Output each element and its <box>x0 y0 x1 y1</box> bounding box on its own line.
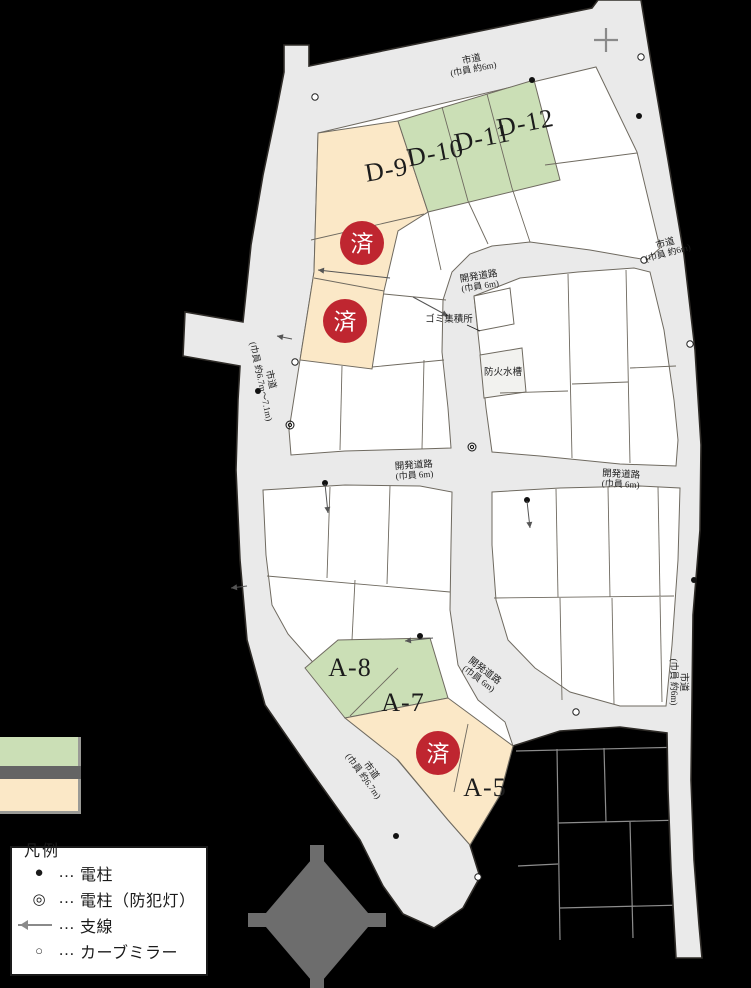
subdivision-map-page: 済済済D-9D-10D-11D-12A-8A-7A-5市道(巾員 約6m)市道(… <box>0 0 751 988</box>
curve-mirror-icon <box>638 54 644 60</box>
lot-label[interactable]: A-7 <box>381 688 424 717</box>
legend-label: 電柱（防犯灯） <box>80 887 196 911</box>
lot-map-canvas: 済済済D-9D-10D-11D-12A-8A-7A-5市道(巾員 約6m)市道(… <box>0 0 751 988</box>
map-legend: 凡例 ● … 電柱 ◎ … 電柱（防犯灯） … 支線 ○ … カーブミラー <box>10 846 208 976</box>
legend-row-curve-mirror: ○ … カーブミラー <box>24 938 206 964</box>
utility-pole-icon: ● <box>24 865 54 882</box>
legend-row-utility-pole: ● … 電柱 <box>24 860 206 886</box>
outside-lot-line <box>560 905 684 908</box>
road-label: 開発道路(巾員 6m) <box>394 458 434 482</box>
legend-dots: … <box>54 864 80 882</box>
utility-pole-icon <box>636 113 642 119</box>
utility-pole-icon <box>393 833 399 839</box>
outside-lot-line <box>557 749 560 940</box>
curve-mirror-icon <box>475 874 481 880</box>
utility-pole-icon <box>691 577 697 583</box>
outside-lot-line <box>518 864 558 866</box>
outside-lot-line <box>558 820 684 823</box>
sold-marker-label: 済 <box>334 309 357 334</box>
sold-marker-label: 済 <box>427 741 450 766</box>
cream-lot-swatch <box>0 779 78 811</box>
guy-wire-icon <box>24 916 54 934</box>
guy-wire-arrowhead-icon <box>231 584 237 590</box>
outside-lot-line <box>604 748 606 822</box>
outside-lot-line <box>630 822 633 938</box>
legend-label: 支線 <box>80 913 113 937</box>
curve-mirror-icon: ○ <box>24 943 54 959</box>
legend-label: カーブミラー <box>80 939 178 963</box>
utility-pole-icon <box>529 77 535 83</box>
compass-mark <box>260 853 374 987</box>
sold-marker-label: 済 <box>351 231 374 256</box>
curve-mirror-icon <box>687 341 693 347</box>
curve-mirror-icon <box>292 359 298 365</box>
legend-row-guy-wire: … 支線 <box>24 912 206 938</box>
lot-color-swatches <box>0 737 81 814</box>
legend-row-utility-pole-light: ◎ … 電柱（防犯灯） <box>24 886 206 912</box>
legend-title: 凡例 <box>24 844 206 860</box>
legend-dots: … <box>54 942 80 960</box>
curve-mirror-icon <box>573 709 579 715</box>
lot-label[interactable]: A-5 <box>463 773 506 802</box>
lot-label[interactable]: A-8 <box>328 653 371 682</box>
curve-mirror-icon <box>312 94 318 100</box>
dark-divider-swatch <box>0 766 81 779</box>
facility-label: 防火水槽 <box>484 366 523 378</box>
road-label: 開発道路(巾員 6m) <box>601 467 641 490</box>
legend-dots: … <box>54 916 80 934</box>
green-lot-swatch <box>0 737 78 766</box>
outside-lot-line <box>516 747 686 751</box>
utility-pole-light-icon: ◎ <box>24 890 54 909</box>
legend-dots: … <box>54 890 80 908</box>
garbage-station-lot <box>474 288 514 331</box>
legend-label: 電柱 <box>80 861 113 885</box>
facility-label: ゴミ集積所 <box>425 313 473 325</box>
utility-pole-icon <box>417 633 423 639</box>
